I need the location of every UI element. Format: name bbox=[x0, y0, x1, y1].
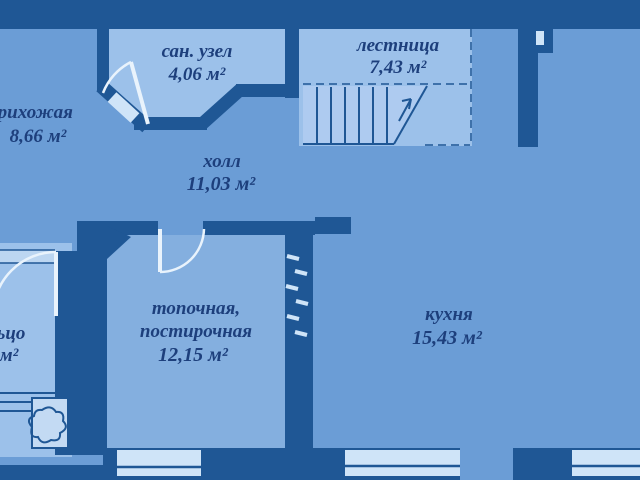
label-kryltso-area: м² bbox=[0, 345, 20, 366]
label-prihozhaya-area: 8,66 м² bbox=[10, 126, 68, 147]
wall-sanuzel-left bbox=[97, 29, 109, 91]
label-kuhnya-name: кухня bbox=[425, 304, 473, 325]
wall-topochnaya-right bbox=[285, 235, 313, 450]
label-prihozhaya-name: прихожая bbox=[0, 102, 73, 123]
wall-bottom-left-strip bbox=[0, 465, 103, 480]
label-topochnaya-name2: постирочная bbox=[140, 321, 252, 342]
label-sanuzel-area: 4,06 м² bbox=[168, 64, 227, 85]
floor-plan-drawing: сан. узел 4,06 м² лестница 7,43 м² прихо… bbox=[0, 0, 640, 480]
floor-plan: сан. узел 4,06 м² лестница 7,43 м² прихо… bbox=[0, 0, 640, 480]
label-sanuzel-name: сан. узел bbox=[162, 41, 233, 62]
kitchen-exit-opening bbox=[460, 448, 513, 480]
window-kitchen-right bbox=[572, 450, 640, 476]
label-lestnitsa-name: лестница bbox=[356, 35, 440, 56]
window-kitchen-left bbox=[345, 450, 460, 476]
wall-sanuzel-bottom-right bbox=[236, 84, 292, 97]
label-lestnitsa-area: 7,43 м² bbox=[370, 57, 428, 78]
label-holl-name: холл bbox=[202, 151, 241, 172]
wall-sanuzel-right bbox=[285, 29, 299, 98]
room-topochnaya bbox=[107, 235, 285, 450]
label-topochnaya-name1: топочная, bbox=[152, 298, 240, 319]
window-topochnaya bbox=[117, 450, 201, 476]
label-topochnaya-area: 12,15 м² bbox=[158, 344, 229, 366]
label-kuhnya-area: 15,43 м² bbox=[412, 327, 483, 349]
wall-topochnaya-left bbox=[77, 226, 107, 455]
label-holl-area: 11,03 м² bbox=[187, 173, 257, 195]
label-kryltso-name: крыльцо bbox=[0, 323, 25, 344]
wall-hall-bottom-right bbox=[203, 221, 315, 235]
window-divider-slot bbox=[536, 31, 544, 45]
wall-top bbox=[0, 0, 640, 29]
wall-hall-cap bbox=[315, 217, 351, 234]
wall-stair-kitchen-divider bbox=[518, 29, 538, 147]
